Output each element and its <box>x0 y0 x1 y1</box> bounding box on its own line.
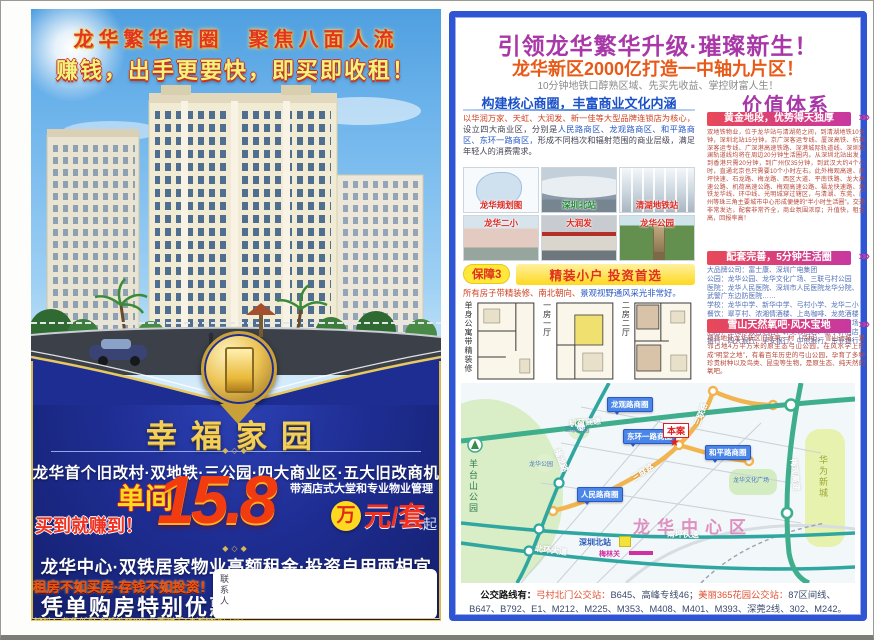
photo-row-2: 龙华二小 大润发 龙华公园 <box>463 215 695 261</box>
commerce-paragraph: 以华润万家、天虹、大润发、新一佳等大型品牌连锁店为核心，设立四大商业区，分别是人… <box>463 113 695 157</box>
photo-north-station: 深圳北站 <box>541 167 617 213</box>
guarantee-row: 保障3 精装小户 投资首选 <box>463 265 695 283</box>
map-station-label: 深圳北站 <box>579 537 611 548</box>
floorplan-two-bed: 二房二厅 <box>620 301 695 381</box>
price-wan-circle: 万 <box>331 501 361 531</box>
floorplan-drawing <box>631 301 695 381</box>
value-section-1-body: 双地铁物业，位于龙华站与清湖苑之间，到清湖地铁10分钟，深圳北站15分钟，京广深… <box>707 129 865 223</box>
flyer-scan: 龙华繁华商圈 聚焦八面人流 赚钱，出手更要快，即买即收租！ <box>0 0 874 640</box>
bus-routes: 公交路线有：弓村北门公交站：B645、高峰专线46；美丽365花园公交站：87区… <box>455 589 861 617</box>
value-section-3-header: 雪山天然氧吧·风水宝地 »» <box>707 319 851 333</box>
left-page: 龙华繁华商圈 聚焦八面人流 赚钱，出手更要快，即买即收租！ <box>31 9 441 621</box>
chevron-icon: »» <box>859 249 867 263</box>
guarantee-note-seg1: 所有房子带精装修、南北朝向、 <box>463 288 580 298</box>
address-line: 地址：龙华新区清湖美丽365花园附近(清湖地铁口旁) <box>34 615 244 621</box>
commerce-para-seg2: 设立四大商业区，分别是 <box>463 125 558 134</box>
photo-caption: 龙华二小 <box>464 217 538 229</box>
map-poi-label: 龙华文化广场 <box>733 475 769 484</box>
price-from: 起 <box>423 514 437 534</box>
map-business-circle: 人民路商圈 <box>577 487 623 502</box>
floorplan-label: 一房一厅 <box>542 301 553 381</box>
value-section-1-header: 黄金地段，优势得天独厚 »» <box>707 112 851 126</box>
chevron-icon: »» <box>859 110 867 124</box>
price-number: 15.8 <box>157 461 273 539</box>
price-slogan: 买到就赚到！ <box>35 512 143 538</box>
photo-caption: 深圳北站 <box>542 199 616 211</box>
photo-school: 龙华二小 <box>463 215 539 261</box>
map-poi-label: 龙华公园 <box>529 459 553 468</box>
price-note: 带酒店式大堂和专业物业管理 <box>290 480 433 496</box>
amenity-line: 大品牌公司：富士康、深圳广电集团 <box>707 267 865 276</box>
guarantee-note: 所有房子带精装修、南北朝向、景观视野通风采光非常好。 <box>463 287 695 299</box>
floorplan-label: 单身公寓带精装修 <box>463 301 474 381</box>
guarantee-title: 精装小户 投资首选 <box>516 264 695 285</box>
map-site-star-icon: ★ <box>669 435 680 449</box>
contact-label: 联系人 <box>218 574 231 607</box>
photo-caption: 龙华规划图 <box>464 199 538 211</box>
divider-ornament: ◆◇◆ <box>31 544 441 553</box>
price-per-unit: 元/套 <box>364 495 426 534</box>
left-header-line1: 龙华繁华商圈 聚焦八面人流 <box>31 23 441 52</box>
floorplan-label: 二房二厅 <box>620 301 631 381</box>
floorplan-row: 单身公寓带精装修 一房一厅 二房二厅 <box>463 301 695 381</box>
map-poi-label: 三联公园 <box>565 425 589 434</box>
value-section-2-header-text: 配套完善，5分钟生活圈 <box>726 252 832 263</box>
floorplan-drawing <box>474 301 538 381</box>
commerce-para-seg1: 以华润万家、天虹、大润发、新一佳等大型品牌连锁店为核心， <box>463 114 695 123</box>
map-business-circle: 龙观路商圈 <box>607 397 653 412</box>
map-business-circle: 和平路商圈 <box>705 445 751 460</box>
floorplan-one-bed: 一房一厅 <box>542 301 617 381</box>
guarantee-note-seg2: 景观视野通风采光非常好。 <box>580 288 681 298</box>
bus-routes-1: B645、高峰专线46； <box>610 590 698 600</box>
right-page: 引领龙华繁华升级·璀璨新生！ 龙华新区2000亿打造一中轴九片区！ 10分钟地铁… <box>449 11 867 621</box>
map-park-label: 羊台山公园 <box>467 459 480 514</box>
photo-caption: 清湖地铁站 <box>620 199 694 211</box>
value-section-2-header: 配套完善，5分钟生活圈 »» <box>707 251 851 265</box>
map-station-marker <box>619 536 631 547</box>
commerce-underline <box>463 109 695 111</box>
photo-planning-map: 龙华规划图 <box>463 167 539 213</box>
value-section-1-header-text: 黄金地段，优势得天独厚 <box>724 113 834 124</box>
bus-stop-1: 弓村北门公交站： <box>536 590 610 600</box>
chevron-icon: »» <box>859 317 867 331</box>
photo-rt-mart: 大润发 <box>541 215 617 261</box>
value-section-3-header-text: 雪山天然氧吧·风水宝地 <box>727 320 830 331</box>
bus-stop-2: 美丽365花园公交站： <box>698 590 788 600</box>
bus-prefix: 公交路线有： <box>480 590 536 600</box>
floorplan-studio: 单身公寓带精装修 <box>463 301 538 381</box>
map-pass-label: 梅林关 <box>599 549 620 559</box>
divider-ornament: ◆◇◆ <box>31 446 441 455</box>
location-map: 机荷高速 福龙路 羊台山公园 华为新城 梅观高速 南坪快速 北环大道 三联路 三… <box>461 383 855 583</box>
amenity-line: 医院：龙华人民医院、深圳市人民医院龙华分院、武警广东边防医院…… <box>707 285 865 303</box>
photo-caption: 龙华公园 <box>620 217 694 229</box>
amenity-line: 学校：龙华中学、新华中学、弓村小学、龙华二小 <box>707 302 865 311</box>
map-district-label: 龙华中心区 <box>633 513 753 538</box>
contact-write-in-box: 联系人 <box>213 569 437 619</box>
photo-caption: 大润发 <box>542 217 616 229</box>
amenity-line: 公园：龙华公园、龙华文化广场、三联弓村公园 <box>707 276 865 285</box>
photo-park: 龙华公园 <box>619 215 695 261</box>
map-area-label: 华为新城 <box>817 455 830 499</box>
left-header-line2: 赚钱，出手更要快，即买即收租！ <box>31 53 441 85</box>
photo-metro-station: 清湖地铁站 <box>619 167 695 213</box>
photo-row-1: 龙华规划图 深圳北站 清湖地铁站 <box>463 167 695 213</box>
guarantee-badge: 保障3 <box>463 264 510 284</box>
map-pass-marker <box>629 551 653 555</box>
value-section-3-body: 项目地处龙华新区旧改第一村（弓村），雪山边城，紧邻占地4万平方米的原生态弓山公园… <box>707 335 865 377</box>
floorplan-drawing <box>553 301 617 381</box>
